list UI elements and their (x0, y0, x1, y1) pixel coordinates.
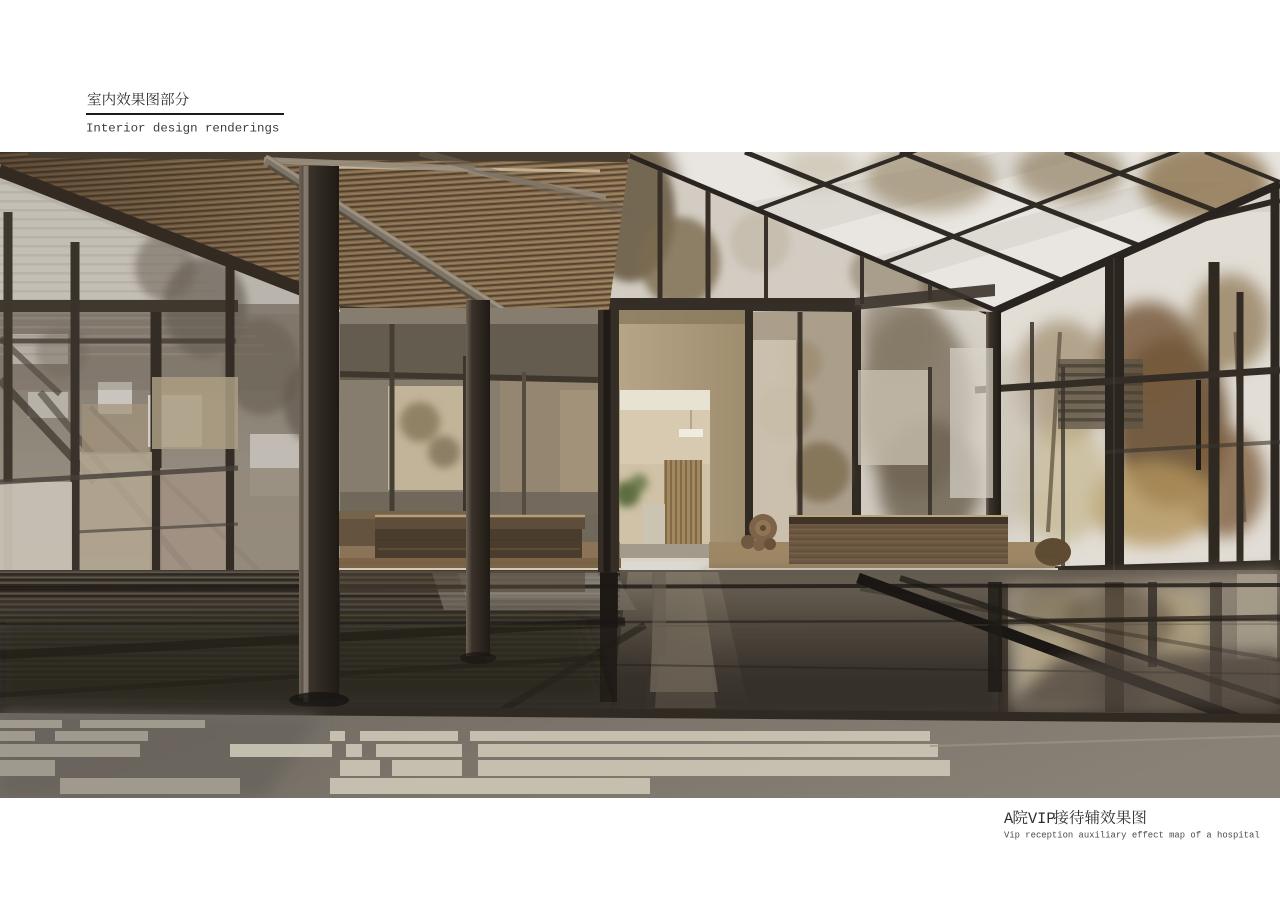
svg-text:VIP: VIP (1028, 810, 1056, 828)
svg-text:Vip reception auxiliary effect: Vip reception auxiliary effect map of a … (1004, 831, 1260, 841)
svg-text:Interior design renderings: Interior design renderings (86, 122, 279, 136)
svg-text:A: A (1004, 810, 1014, 828)
